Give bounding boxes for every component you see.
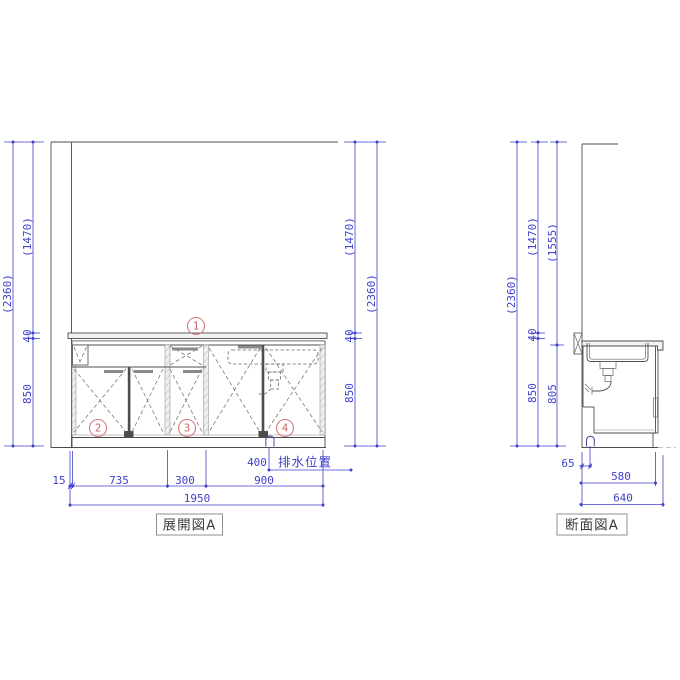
section-title-box: 断面図A <box>557 514 627 535</box>
elevation-doors-735 <box>74 367 163 437</box>
section-dim-depth: 580 <box>611 470 631 483</box>
elevation-dims-right: (1470) 40 850 (2360) <box>343 141 386 448</box>
dim-width-total: 1950 <box>184 492 211 505</box>
drain-position-label: 排水位置 <box>278 455 332 470</box>
hidden-sink-outline <box>228 350 318 394</box>
dim-width-filler: 15 <box>52 474 65 487</box>
section-dim-depth-total: 640 <box>613 492 633 505</box>
dim-upper-left: (1470) <box>21 217 34 257</box>
section-dim-body: 805 <box>546 384 559 404</box>
section-dims-left: (2360) (1470) (1555) 40 850 805 <box>505 141 567 448</box>
dim-base-right: 850 <box>343 383 356 403</box>
dim-overall-right: (2360) <box>365 274 378 314</box>
section-wall <box>582 144 676 448</box>
section-sink <box>585 343 648 395</box>
dim-drain-offset: 400 <box>247 456 267 469</box>
section-dim-base: 850 <box>526 383 539 403</box>
elevation-view: 1 2 3 4 (2360) (1470) 40 850 <box>1 141 386 536</box>
dim-upper-right: (1470) <box>343 217 356 257</box>
dim-counter-right: 40 <box>343 329 356 342</box>
elevation-wall <box>51 142 338 448</box>
elevation-drain-leader: 400 排水位置 <box>247 447 352 472</box>
elevation-tilt-panel <box>73 345 89 365</box>
dim-base-left: 850 <box>21 384 34 404</box>
callout-3: 3 <box>184 423 190 435</box>
cad-drawing-canvas: 1 2 3 4 (2360) (1470) 40 850 <box>0 0 680 680</box>
section-dim-counter: 40 <box>526 328 539 341</box>
section-dim-overall: (2360) <box>505 275 518 315</box>
section-dims-bottom: 65 580 640 <box>561 446 664 507</box>
section-backsplash <box>574 333 582 354</box>
callout-1: 1 <box>193 321 199 333</box>
elevation-sink-cabinet <box>209 345 322 437</box>
section-title: 断面図A <box>565 518 619 534</box>
section-dim-upper-body: (1555) <box>546 223 559 263</box>
section-countertop <box>582 341 663 350</box>
section-dim-drain-offset: 65 <box>561 457 574 470</box>
callout-4: 4 <box>282 423 288 435</box>
section-dim-upper: (1470) <box>526 217 539 257</box>
callout-2: 2 <box>95 423 101 435</box>
elevation-title: 展開図A <box>163 518 217 534</box>
dim-width-mid: 300 <box>175 474 195 487</box>
section-view: (2360) (1470) (1555) 40 850 805 65 580 6… <box>505 141 676 536</box>
dim-width-sink: 900 <box>254 474 274 487</box>
elevation-dims-left: (2360) (1470) 40 850 <box>1 141 44 448</box>
drawing-svg: 1 2 3 4 (2360) (1470) 40 850 <box>0 0 680 680</box>
elevation-title-box: 展開図A <box>157 514 223 535</box>
dim-counter-left: 40 <box>21 329 34 342</box>
drain-mark-section <box>586 436 594 446</box>
dim-overall-left: (2360) <box>1 274 14 314</box>
dim-width-doors: 735 <box>109 474 129 487</box>
